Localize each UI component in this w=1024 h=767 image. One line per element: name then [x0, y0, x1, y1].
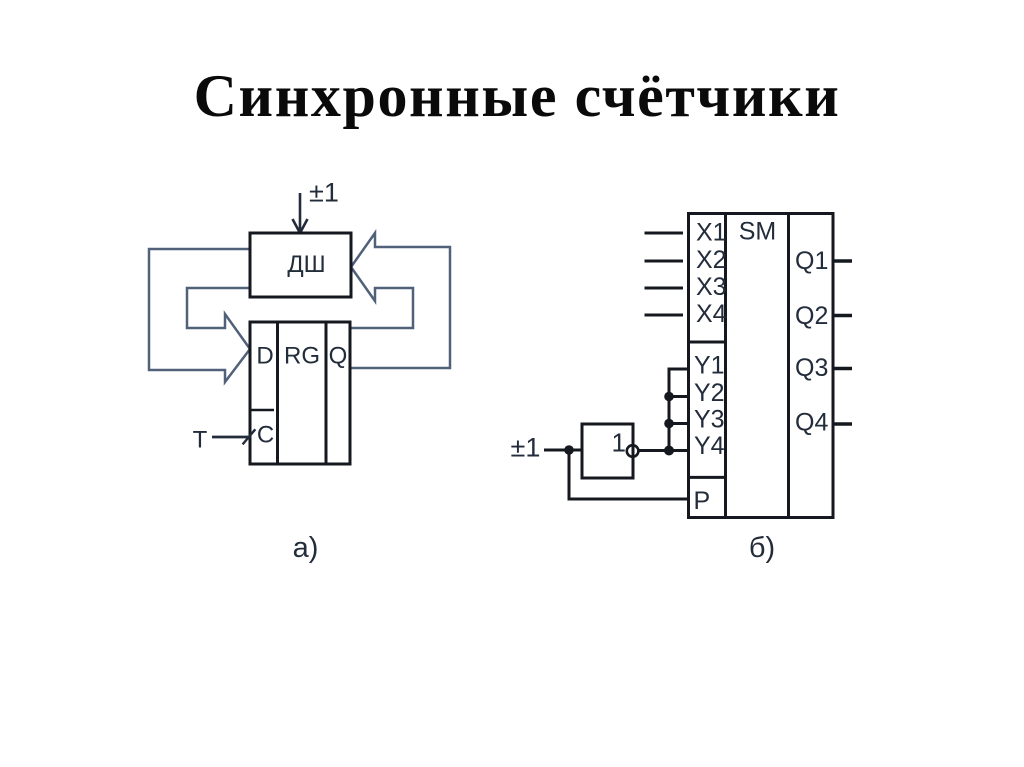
svg-text:X2: X2	[696, 246, 727, 274]
svg-text:±1: ±1	[309, 178, 339, 208]
svg-text:Q4: Q4	[795, 409, 828, 437]
svg-text:SM: SM	[739, 218, 777, 246]
svg-text:D: D	[256, 343, 273, 370]
svg-text:а): а)	[293, 532, 319, 564]
svg-text:T: T	[193, 427, 208, 454]
svg-text:1: 1	[612, 428, 626, 458]
svg-text:Q: Q	[329, 343, 348, 370]
svg-text:RG: RG	[284, 343, 320, 370]
svg-text:X4: X4	[696, 300, 727, 328]
svg-text:Y1: Y1	[694, 352, 725, 380]
svg-text:Q3: Q3	[795, 354, 828, 382]
svg-text:Y3: Y3	[694, 406, 725, 434]
svg-text:Q2: Q2	[795, 302, 828, 330]
svg-text:C: C	[257, 422, 274, 449]
svg-text:P: P	[694, 487, 711, 515]
svg-text:Y2: Y2	[694, 379, 725, 407]
svg-text:Y4: Y4	[694, 432, 725, 460]
svg-text:б): б)	[749, 532, 775, 564]
svg-text:Q1: Q1	[795, 247, 828, 275]
svg-text:X1: X1	[696, 219, 727, 247]
svg-text:X3: X3	[696, 273, 727, 301]
svg-text:±1: ±1	[511, 433, 541, 463]
svg-text:ДШ: ДШ	[287, 251, 325, 278]
